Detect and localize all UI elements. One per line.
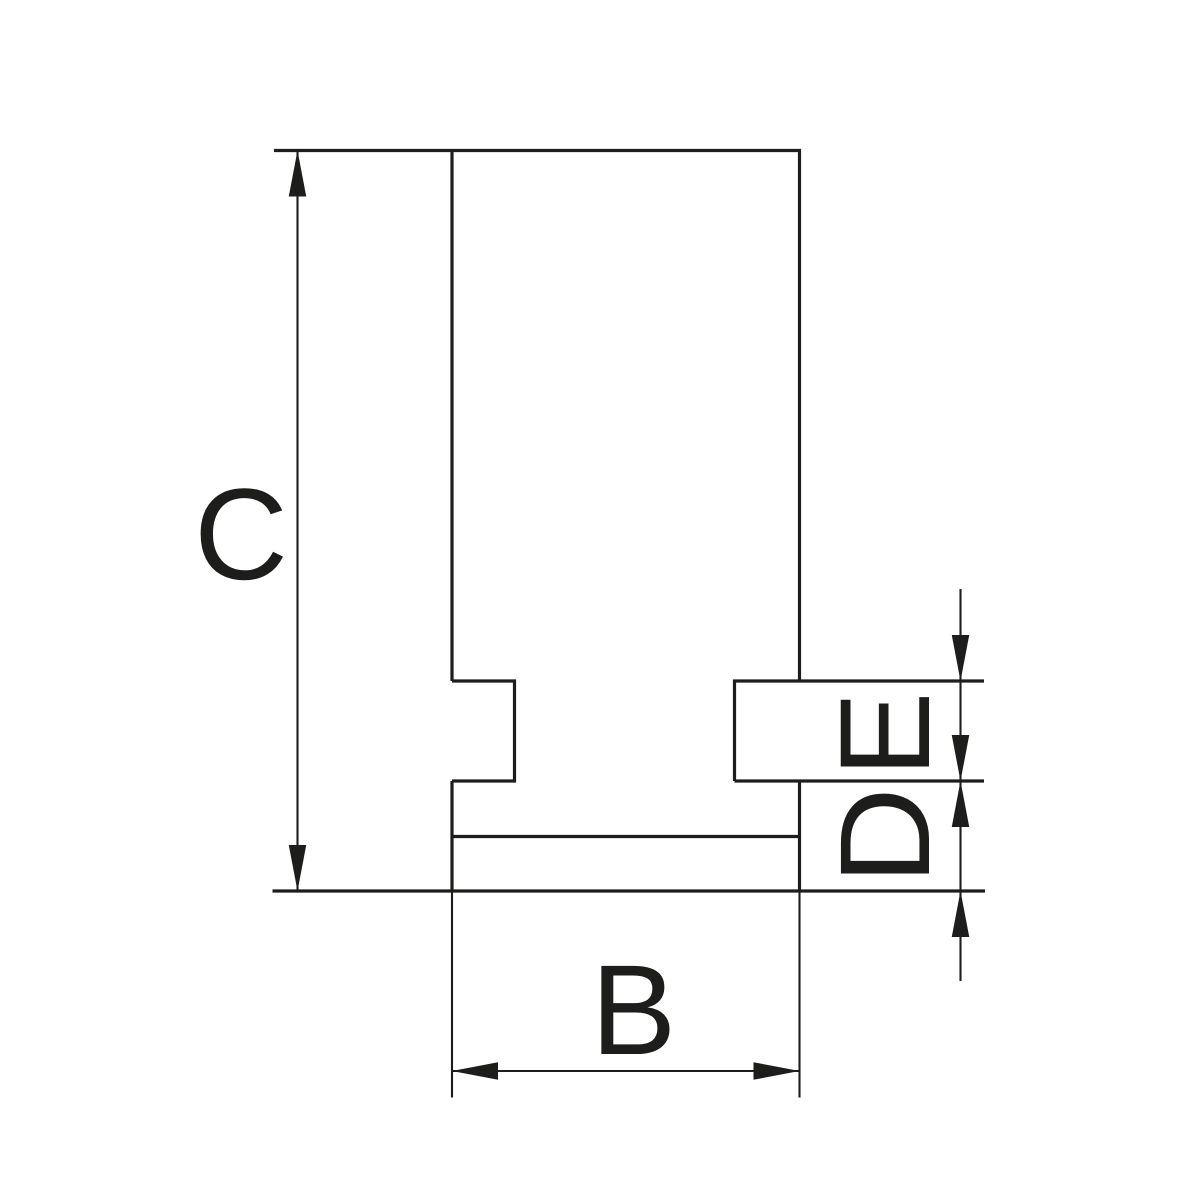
svg-text:C: C bbox=[194, 461, 288, 607]
svg-text:E: E bbox=[814, 692, 957, 777]
svg-text:D: D bbox=[814, 787, 957, 884]
svg-text:B: B bbox=[591, 939, 676, 1082]
